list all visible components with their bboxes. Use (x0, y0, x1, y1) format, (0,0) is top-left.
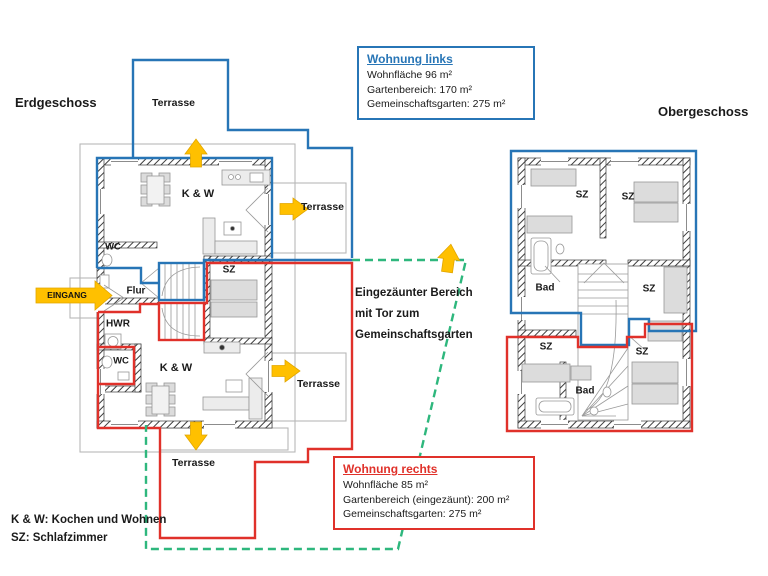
info-left-line2: Gartenbereich: 170 m² (367, 83, 525, 98)
fence-note-line2: mit Tor zum (355, 304, 473, 325)
room-sz-ground: SZ (223, 265, 236, 276)
room-sz-bottom-right: SZ (636, 347, 649, 358)
room-hwr: HWR (106, 319, 130, 330)
fence-note-line1: Eingezäunter Bereich (355, 283, 473, 304)
legend: K & W: Kochen und Wohnen SZ: Schlafzimme… (11, 511, 166, 547)
room-bad-top: Bad (536, 283, 555, 294)
info-left-line3: Gemeinschaftsgarten: 275 m² (367, 97, 525, 112)
info-right-line1: Wohnfläche 85 m² (343, 478, 525, 493)
room-sz-top-right: SZ (622, 192, 635, 203)
room-wc-top: WC (105, 242, 121, 253)
upper-stairs (578, 264, 628, 420)
info-left-title: Wohnung links (367, 52, 525, 66)
room-wc-bottom: WC (113, 356, 129, 367)
room-kw-bottom: K & W (160, 362, 192, 374)
room-bad-bottom: Bad (576, 386, 595, 397)
legend-kw: K & W: Kochen und Wohnen (11, 511, 166, 529)
info-box-right-apartment: Wohnung rechts Wohnfläche 85 m² Gartenbe… (333, 456, 535, 530)
fence-note-line3: Gemeinschaftsgarten (355, 325, 473, 346)
ground-floor-title: Erdgeschoss (15, 95, 97, 110)
room-flur: Flur (127, 286, 146, 297)
fence-note: Eingezäunter Bereich mit Tor zum Gemeins… (355, 283, 473, 346)
info-right-title: Wohnung rechts (343, 462, 525, 476)
room-kw-top: K & W (182, 188, 214, 200)
terrace-label-bottom: Terrasse (172, 457, 215, 469)
ground-stairs (159, 263, 204, 340)
info-box-left-apartment: Wohnung links Wohnfläche 96 m² Gartenber… (357, 46, 535, 120)
terrace-arrow-right-lower-icon (272, 360, 300, 382)
terrace-label-right-upper: Terrasse (301, 201, 344, 213)
legend-sz: SZ: Schlafzimmer (11, 529, 166, 547)
terrace-label-right-lower: Terrasse (297, 378, 340, 390)
gate-arrow-icon (436, 243, 462, 274)
room-sz-bottom-left: SZ (540, 342, 553, 353)
room-sz-mid-right: SZ (643, 284, 656, 295)
info-right-line2: Gartenbereich (eingezäunt): 200 m² (343, 493, 525, 508)
info-left-line1: Wohnfläche 96 m² (367, 68, 525, 83)
info-right-line3: Gemeinschaftsgarten: 275 m² (343, 507, 525, 522)
upper-floor-title: Obergeschoss (658, 104, 748, 119)
floor-plan-canvas: Erdgeschoss Obergeschoss Terrasse Terras… (0, 0, 768, 576)
entrance-label: EINGANG (39, 290, 95, 300)
terrace-label-top: Terrasse (152, 97, 195, 109)
room-sz-top-left: SZ (576, 190, 589, 201)
